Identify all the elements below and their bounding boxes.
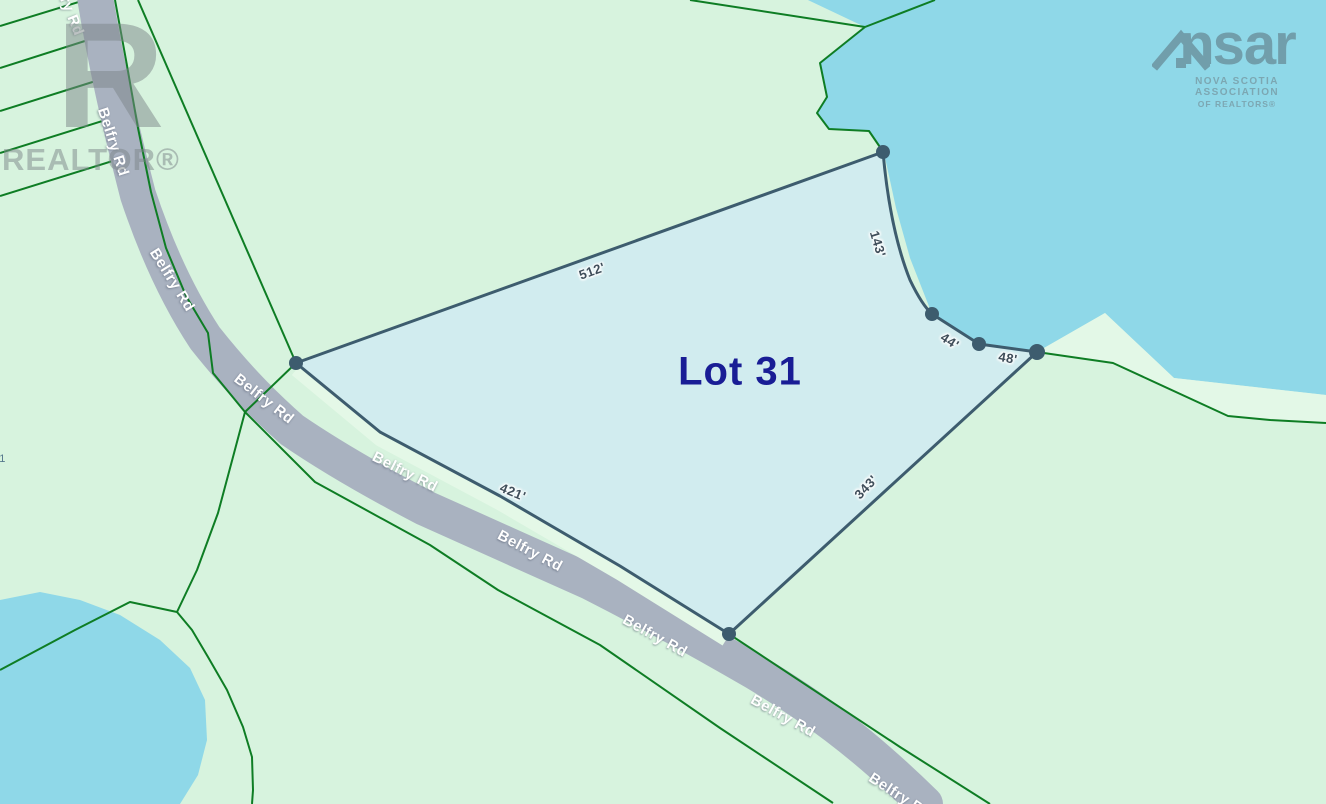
nsar-house-icon [1152,22,1210,72]
pond-water-area [0,592,207,804]
civic-number-label: 11 [0,453,5,465]
boundary-line-north [138,0,296,363]
nsar-subtitle-line1: NOVA SCOTIA ASSOCIATION [1152,76,1322,98]
map-canvas [0,0,1326,804]
property-map: Lot 31 512' 143' 44' 48' 343' 421' Belfr… [0,0,1326,804]
boundary-southeast [729,634,990,804]
boundary-south [177,412,245,612]
measurement-label: 48' [997,349,1018,367]
nsar-subtitle-line2: OF REALTORS® [1152,99,1322,109]
nsar-logo: ns ar NOVA SCOTIA ASSOCIATION OF REALTOR… [1152,22,1322,109]
nsar-wordmark-right: ar [1244,22,1295,68]
lot-number-label: Lot 31 [678,350,802,395]
